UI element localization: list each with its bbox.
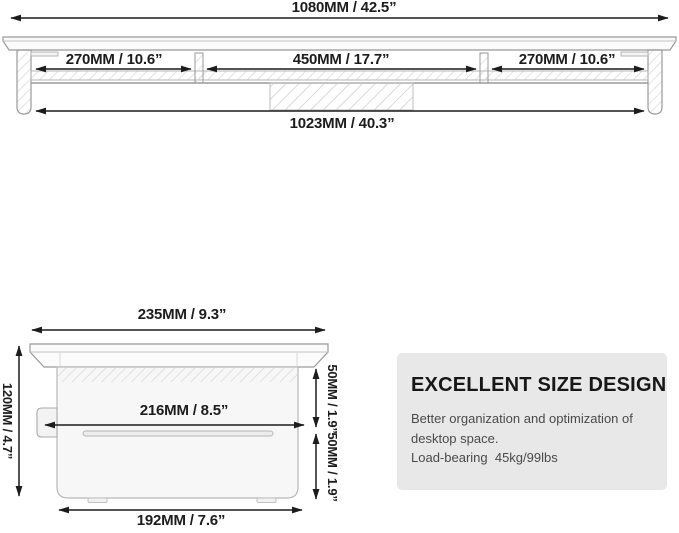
right-foot xyxy=(257,498,276,503)
dim-label-inner-depth: 216MM / 8.5” xyxy=(140,403,228,420)
info-panel-line3: Load-bearing 45kg/99lbs xyxy=(411,448,653,468)
side-body-hatch xyxy=(58,368,297,382)
dim-label-height: 120MM / 4.7” xyxy=(0,383,15,459)
left-divider xyxy=(195,53,203,83)
front-slot xyxy=(83,431,273,436)
right-leg xyxy=(648,50,662,114)
info-panel-body: Better organization and optimization of … xyxy=(411,409,653,468)
center-back-panel xyxy=(270,83,413,110)
info-panel-title: EXCELLENT SIZE DESIGN xyxy=(411,375,653,396)
lower-shelf-strip xyxy=(31,71,648,80)
dim-label-top-depth: 235MM / 9.3” xyxy=(138,307,226,324)
dim-label-right-section: 270MM / 10.6” xyxy=(519,52,616,69)
dim-label-upper-gap: 50MM / 1.9” xyxy=(325,364,340,433)
product-dimension-diagram: 1080MM / 42.5” 270MM / 10.6” 450MM / 17.… xyxy=(0,0,679,533)
shelf-top-board xyxy=(3,37,676,50)
info-panel-line2: desktop space. xyxy=(411,429,653,449)
left-leg xyxy=(17,50,31,114)
dim-label-inner-width: 1023MM / 40.3” xyxy=(290,116,395,133)
left-hook-tab xyxy=(37,408,57,437)
right-divider xyxy=(480,53,488,83)
dim-label-left-section: 270MM / 10.6” xyxy=(66,52,163,69)
dim-label-lower-gap: 50MM / 1.9” xyxy=(325,432,340,501)
side-top-board xyxy=(30,344,328,367)
info-panel: EXCELLENT SIZE DESIGN Better organizatio… xyxy=(397,353,667,490)
dim-label-base-depth: 192MM / 7.6” xyxy=(137,513,225,530)
left-bracket xyxy=(31,52,58,56)
dim-label-center-section: 450MM / 17.7” xyxy=(293,52,390,69)
right-bracket xyxy=(621,52,648,56)
info-panel-line1: Better organization and optimization of xyxy=(411,409,653,429)
left-foot xyxy=(88,498,107,503)
dim-label-overall-width: 1080MM / 42.5” xyxy=(292,0,397,17)
